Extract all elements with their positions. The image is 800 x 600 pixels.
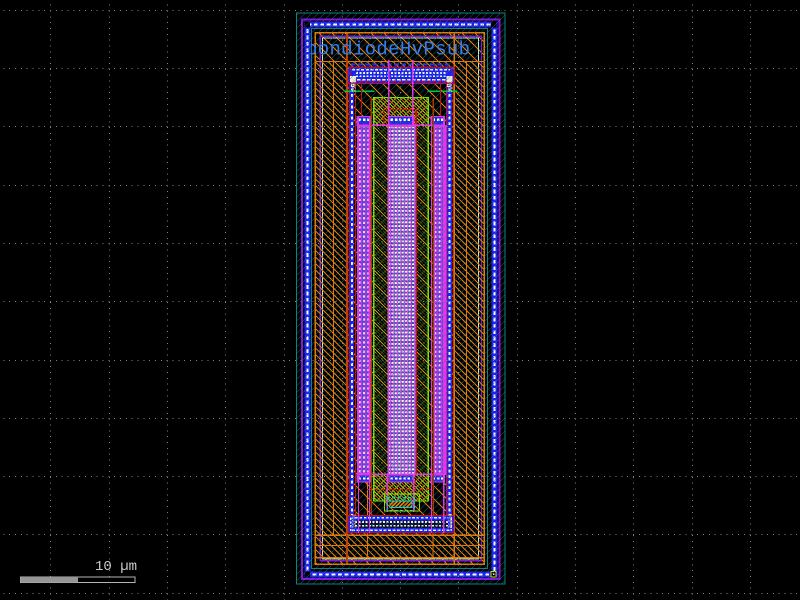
svg-text:5Q2SC: 5Q2SC — [447, 78, 453, 93]
svg-text:2Q25C: 2Q25C — [350, 514, 356, 529]
svg-text:10 µm: 10 µm — [95, 559, 137, 575]
svg-text:5Q2SC: 5Q2SC — [350, 78, 356, 93]
svg-text:5CbS2: 5CbS2 — [447, 514, 453, 529]
svg-text:bondiodeHvPsub: bondiodeHvPsub — [306, 39, 470, 61]
